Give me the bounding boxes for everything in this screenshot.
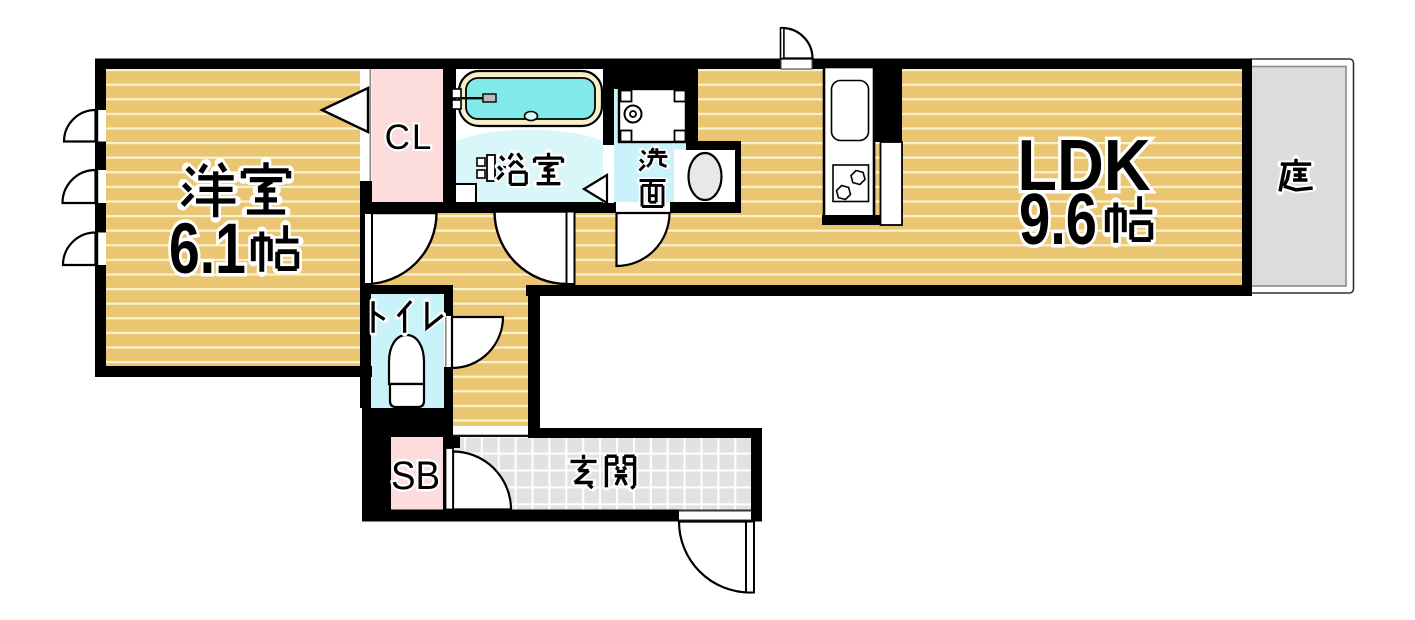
svg-text:CL: CL <box>385 118 434 157</box>
svg-text:SB: SB <box>391 454 440 499</box>
svg-text:6.1: 6.1 <box>169 209 246 288</box>
svg-text:9.6: 9.6 <box>1019 179 1097 259</box>
